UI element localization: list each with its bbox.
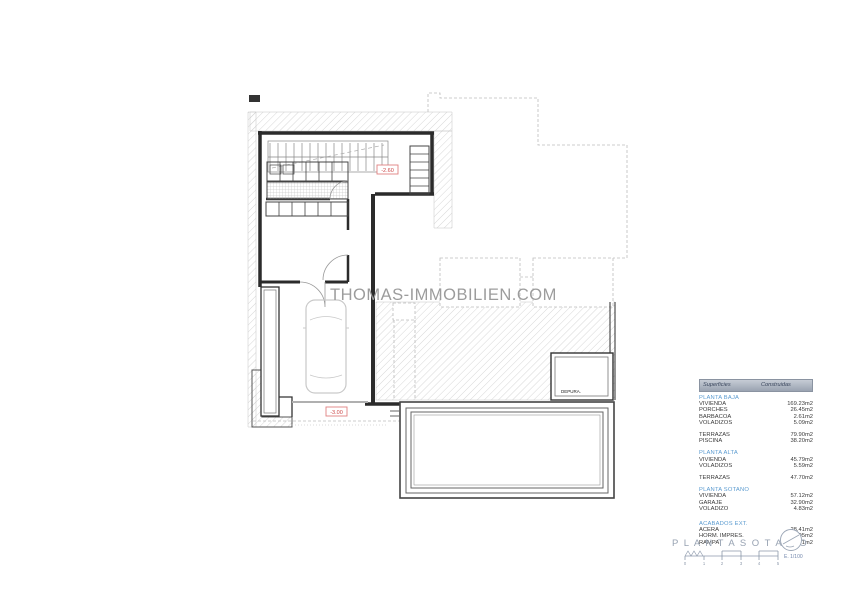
watermark: THOMAS-IMMOBILIEN.COM [330,286,557,305]
area-row: PISCINA 38.20m2 [699,438,813,444]
pool-connector [390,411,400,416]
architect-logo [781,530,802,551]
areas-table-header: Superficies Construidas [699,379,813,392]
pool [390,402,614,498]
area-value: 47.70m2 [790,475,813,481]
shelf-dense-rack [267,182,348,199]
area-label: VOLADIZOS [699,420,732,426]
areas-header-superficies: Superficies [700,382,755,388]
area-label: VOLADIZO [699,506,728,512]
staircase [268,141,388,172]
table-group-terrazas-baja: TERRAZAS 79.90m2 PISCINA 38.20m2 [699,432,813,444]
area-row: TERRAZAS 47.70m2 [699,475,813,481]
scale-number: 2 [721,561,724,566]
dashed-roof-outline [428,93,627,258]
scale-zigzag [685,551,703,556]
table-group-terrazas-alta: TERRAZAS 47.70m2 [699,475,813,481]
scale-numbers: 0 1 2 3 4 5 [684,561,780,566]
scale-ticks [685,556,778,560]
shelf-column-dividers [410,154,429,186]
pool-outer-wall [400,402,614,498]
hatch-right-strip [434,131,452,228]
table-group-planta-baja: PLANTA BAJA VIVIENDA 169.23m2 PORCHES 26… [699,395,813,426]
area-label: PISCINA [699,438,722,444]
area-value: 4.83m2 [794,506,813,512]
scale-number: 1 [703,561,706,566]
area-row: VOLADIZOS 5.59m2 [699,463,813,469]
area-value: 38.20m2 [790,438,813,444]
elevation-lower-label: -3.00 [330,410,343,416]
scale-number: 0 [684,561,687,566]
wall-corner-mark [249,95,260,102]
hatch-top-band [250,112,452,131]
ramp [261,287,292,417]
areas-header-construidas: Construidas [755,382,791,388]
shelf-row-2-dividers [279,202,331,216]
car-outline [303,300,349,393]
scale-bar [685,551,778,560]
table-group-planta-alta: PLANTA ALTA VIVIENDA 45.79m2 VOLADIZOS 5… [699,450,813,469]
car-windshield [310,317,342,321]
area-value: 5.09m2 [794,420,813,426]
scale-number: 5 [777,561,780,566]
area-row: VOLADIZO 4.83m2 [699,506,813,512]
area-label: TERRAZAS [699,475,730,481]
car-rear-window [310,375,342,378]
scale-label: E. 1/100 [784,554,803,560]
logo-circle [781,530,802,551]
door-garage [300,282,325,307]
scale-number: 3 [740,561,743,566]
depura-room: DEPURA. [551,353,613,400]
car-body [306,300,346,393]
ramp-step [279,397,292,417]
page: { "watermark": "THOMAS-IMMOBILIEN.COM", … [0,0,842,595]
shelf-row-2 [266,202,348,216]
dashed-shaft [393,303,415,320]
scale-number: 4 [758,561,761,566]
area-value: 5.59m2 [794,463,813,469]
area-row: VOLADIZOS 5.09m2 [699,420,813,426]
title-block: P L A N T A S O T A N O 0 1 2 3 4 5 E. 1… [660,523,842,583]
table-group-planta-sotano: PLANTA SOTANO VIVIENDA 57.12m2 GARAJE 32… [699,487,813,512]
area-label: VOLADIZOS [699,463,732,469]
door-lower-room [323,255,348,280]
elevation-upper-label: -2.60 [381,168,394,174]
depura-label: DEPURA. [561,389,581,394]
scale-upper-segments [722,551,778,556]
